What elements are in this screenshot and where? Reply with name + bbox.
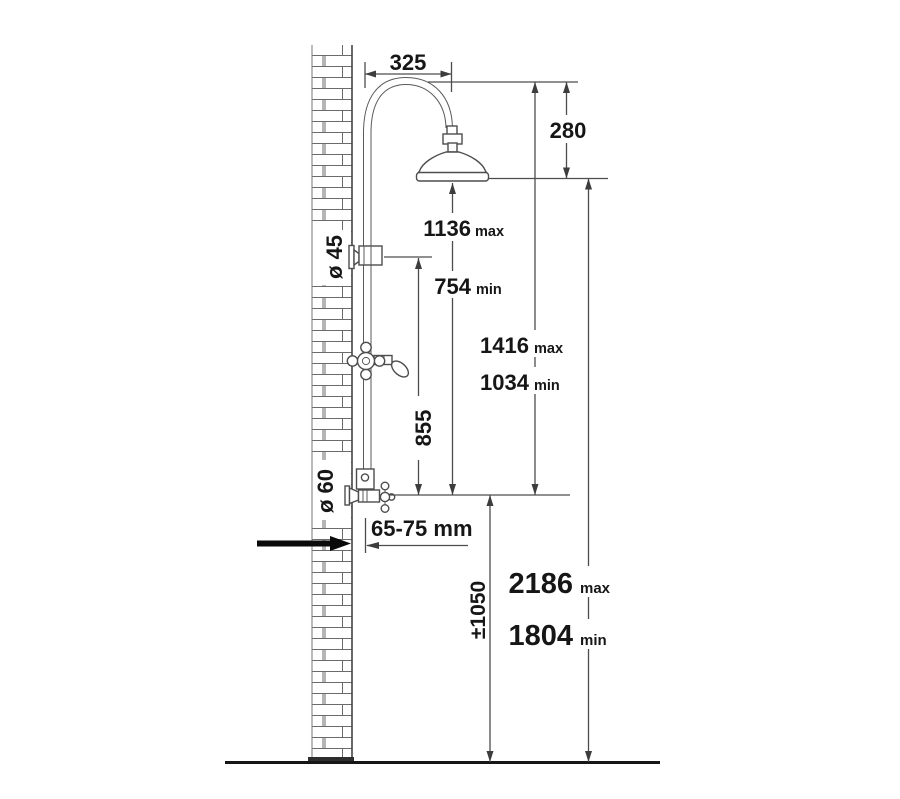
- label-total-min-suffix: min: [580, 632, 607, 649]
- label-total-min: 1804: [508, 620, 573, 652]
- label-head-max: 1136: [423, 216, 471, 241]
- head-rim: [417, 173, 489, 182]
- label-inlet-height: ±1050: [467, 581, 490, 639]
- label-upper-diameter-group: ø 45: [322, 235, 347, 279]
- label-lower-diameter: ø 60: [313, 469, 338, 513]
- head-bell: [418, 152, 487, 173]
- diverter-valve: [347, 342, 411, 380]
- label-wall-offset: 65-75 mm: [371, 516, 473, 541]
- floor-line: [225, 761, 660, 764]
- label-head-min-suffix: min: [476, 282, 502, 298]
- label-riser-min: 1034: [480, 370, 530, 395]
- shower-head: [417, 126, 489, 181]
- label-head-height: 280: [550, 118, 587, 143]
- label-total-max-suffix: max: [580, 580, 611, 597]
- label-head-min: 754: [434, 274, 471, 299]
- adjuster-knob: [361, 474, 368, 481]
- label-top-reach: 325: [390, 50, 427, 75]
- technical-drawing: 325 280 1136 max 754 min 1416 max 1034 m…: [0, 0, 900, 799]
- label-total-max: 2186: [508, 568, 573, 600]
- label-riser-max: 1416: [480, 333, 529, 358]
- label-head-max-suffix: max: [475, 224, 504, 240]
- elbow-handle: [380, 492, 389, 501]
- wall-bracket: [349, 246, 382, 269]
- label-bracket-to-valve: 855: [411, 410, 436, 447]
- label-riser-min-suffix: min: [534, 378, 560, 394]
- shower-column: [364, 130, 372, 471]
- label-bracket-to-valve-group: 855: [411, 396, 436, 460]
- head-stem: [448, 143, 457, 152]
- cross-handle: [358, 353, 375, 370]
- label-inlet-height-group: ±1050: [467, 581, 490, 639]
- gooseneck-arm: [364, 78, 453, 134]
- riser-adjuster: [357, 469, 375, 489]
- label-lower-diameter-group: ø 60: [313, 469, 338, 513]
- label-upper-diameter: ø 45: [322, 235, 347, 279]
- brick-wall: [308, 45, 354, 763]
- label-riser-max-suffix: max: [534, 341, 563, 357]
- installation-diagram: 325 280 1136 max 754 min 1416 max 1034 m…: [0, 0, 900, 799]
